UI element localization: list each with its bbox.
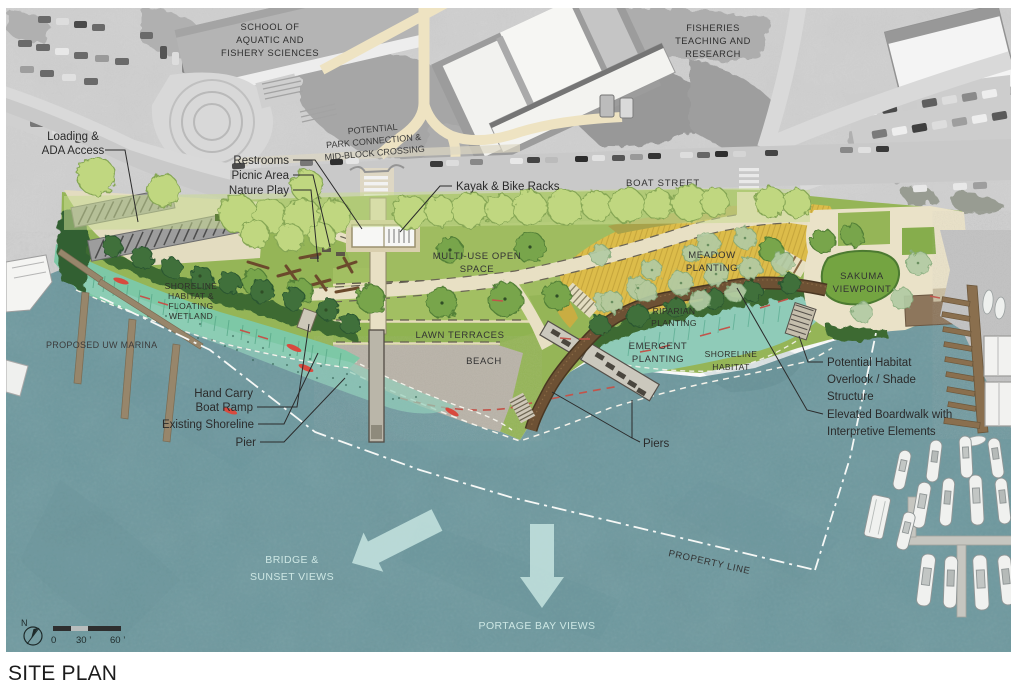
svg-text:Overlook / Shade: Overlook / Shade [827, 374, 916, 386]
svg-text:PROPOSED UW MARINA: PROPOSED UW MARINA [46, 340, 157, 350]
svg-text:Restrooms: Restrooms [233, 155, 289, 167]
svg-text:60 ’: 60 ’ [110, 635, 125, 646]
svg-text:MULTI-USE OPEN: MULTI-USE OPEN [433, 251, 521, 262]
svg-text:Existing Shoreline: Existing Shoreline [162, 419, 254, 431]
svg-text:SAKUMA: SAKUMA [840, 271, 884, 282]
svg-text:30 ’: 30 ’ [76, 635, 91, 646]
svg-text:HABITAT &: HABITAT & [168, 291, 214, 301]
svg-text:PLANTING: PLANTING [651, 318, 697, 328]
svg-text:Pier: Pier [236, 437, 257, 449]
svg-text:Nature Play: Nature Play [229, 185, 289, 197]
svg-text:AQUATIC AND: AQUATIC AND [236, 35, 304, 45]
svg-text:BRIDGE &: BRIDGE & [265, 554, 318, 566]
svg-text:SITE PLAN: SITE PLAN [8, 662, 117, 685]
svg-text:LAWN TERRACES: LAWN TERRACES [415, 330, 504, 341]
svg-text:FLOATING: FLOATING [168, 301, 213, 311]
svg-text:Boat Ramp: Boat Ramp [195, 402, 253, 414]
svg-text:Loading &: Loading & [47, 131, 99, 143]
svg-text:SHORELINE: SHORELINE [165, 281, 218, 291]
svg-text:RIPARIAN: RIPARIAN [653, 306, 696, 316]
svg-text:BEACH: BEACH [466, 356, 502, 367]
svg-text:PORTAGE BAY VIEWS: PORTAGE BAY VIEWS [479, 620, 596, 632]
svg-text:Picnic Area: Picnic Area [231, 170, 289, 182]
svg-text:PLANTING: PLANTING [632, 354, 684, 365]
svg-text:SHORELINE: SHORELINE [705, 349, 758, 359]
svg-text:SUNSET VIEWS: SUNSET VIEWS [250, 571, 334, 583]
svg-text:SPACE: SPACE [460, 264, 495, 275]
svg-text:RESEARCH: RESEARCH [685, 49, 741, 59]
svg-text:FISHERY SCIENCES: FISHERY SCIENCES [221, 48, 319, 58]
svg-text:Elevated Boardwalk with: Elevated Boardwalk with [827, 409, 952, 421]
svg-text:WETLAND: WETLAND [169, 311, 213, 321]
svg-text:Kayak & Bike Racks: Kayak & Bike Racks [456, 181, 560, 193]
svg-text:Hand Carry: Hand Carry [194, 388, 253, 400]
svg-text:VIEWPOINT: VIEWPOINT [833, 284, 892, 295]
svg-text:0: 0 [51, 635, 56, 646]
svg-text:SCHOOL OF: SCHOOL OF [241, 22, 300, 32]
svg-text:ADA Access: ADA Access [42, 145, 105, 157]
svg-text:Piers: Piers [643, 438, 669, 450]
svg-text:EMERGENT: EMERGENT [629, 341, 688, 352]
svg-text:Interpretive Elements: Interpretive Elements [827, 426, 936, 438]
svg-text:TEACHING AND: TEACHING AND [675, 36, 751, 46]
svg-text:N: N [21, 618, 28, 628]
svg-text:Structure: Structure [827, 391, 874, 403]
svg-text:FISHERIES: FISHERIES [686, 23, 740, 33]
svg-text:Potential Habitat: Potential Habitat [827, 357, 912, 369]
svg-text:MEADOW: MEADOW [688, 250, 735, 261]
svg-text:HABITAT: HABITAT [712, 362, 749, 372]
svg-text:PLANTING: PLANTING [686, 263, 738, 274]
